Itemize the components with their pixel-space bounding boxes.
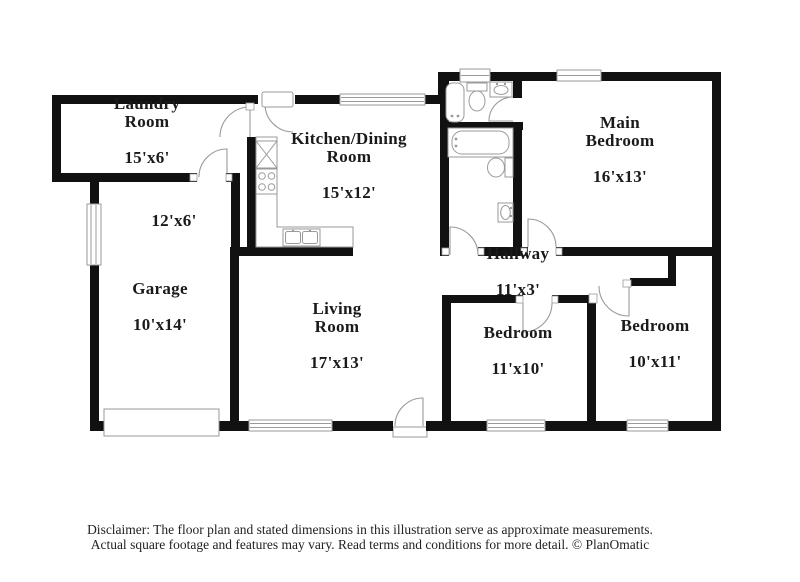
bathtub-icon: [448, 128, 513, 157]
window: [87, 204, 101, 265]
window: [460, 69, 490, 82]
door-arc: [489, 97, 513, 121]
room-label-bedroom-2: Bedroom 10'x11': [621, 299, 690, 389]
wall: [230, 247, 353, 256]
wall: [667, 421, 721, 431]
room-name: Laundry Room: [114, 95, 180, 131]
room-name: Kitchen/Dining Room: [291, 130, 407, 166]
bathroom-2-fixtures: [448, 128, 513, 222]
room-name: Main Bedroom: [586, 114, 655, 150]
room-name: Hallway: [487, 245, 550, 263]
room-label-bedroom-1: Bedroom 11'x10': [484, 306, 553, 396]
room-label-breezeway: 12'x6': [151, 176, 196, 248]
wall: [295, 95, 341, 104]
wall: [587, 295, 596, 431]
shower-icon: [446, 83, 464, 122]
room-name: Living Room: [310, 300, 364, 336]
refrigerator-icon: [256, 141, 277, 168]
kitchen-sink-icon: [283, 229, 320, 246]
room-dims: 11'x10': [484, 360, 553, 378]
wall: [231, 173, 240, 256]
door-arc: [265, 104, 293, 132]
wall: [544, 421, 629, 431]
toilet-icon: [467, 83, 487, 111]
door-arc: [220, 107, 250, 137]
door-jamb: [589, 294, 597, 303]
wall: [426, 421, 488, 431]
window: [627, 420, 668, 431]
window: [557, 70, 601, 81]
toilet-icon: [488, 158, 514, 177]
room-dims: 10'x14': [132, 316, 188, 334]
window: [340, 94, 425, 105]
room-dims: 15'x12': [291, 184, 407, 202]
disclaimer-line-1: Disclaimer: The floor plan and stated di…: [87, 522, 653, 537]
door-jamb: [552, 296, 558, 303]
door-jamb: [623, 280, 631, 287]
room-label-main-bedroom: Main Bedroom 16'x13': [586, 96, 655, 204]
room-name: Bedroom: [621, 317, 690, 335]
room-dims: 17'x13': [310, 354, 364, 372]
wall: [513, 81, 522, 98]
door-jamb: [246, 103, 254, 110]
room-label-laundry: Laundry Room 15'x6': [114, 77, 180, 185]
wall: [668, 250, 676, 282]
bathroom-1-fixtures: [446, 82, 512, 122]
wall: [90, 182, 99, 206]
room-dims: 15'x6': [114, 149, 180, 167]
room-label-living-room: Living Room 17'x13': [310, 282, 364, 390]
wall: [52, 173, 99, 182]
room-dims: 12'x6': [151, 212, 196, 230]
disclaimer: Disclaimer: The floor plan and stated di…: [87, 522, 653, 552]
door-arc: [199, 149, 227, 177]
front-door-arc: [395, 398, 423, 426]
wall: [489, 72, 559, 81]
room-name: Bedroom: [484, 324, 553, 342]
wall: [230, 247, 239, 431]
wall: [90, 264, 99, 431]
door-jamb: [442, 248, 449, 255]
door-arc: [450, 227, 478, 255]
stove-icon: [256, 169, 277, 194]
room-dims: 10'x11': [621, 353, 690, 371]
window: [249, 420, 332, 431]
door-jamb: [556, 248, 562, 255]
bathroom-sink-icon: [498, 203, 513, 222]
door-jamb: [478, 248, 484, 255]
wall: [247, 137, 256, 256]
garage-door: [104, 409, 219, 436]
room-dims: 11'x3': [487, 281, 550, 299]
wall: [442, 295, 451, 431]
window: [487, 420, 545, 431]
wall: [600, 72, 721, 81]
wall: [331, 421, 393, 431]
floor-plan: Laundry Room 15'x6' 12'x6' Kitchen/Dinin…: [0, 0, 800, 582]
disclaimer-line-2: Actual square footage and features may v…: [87, 537, 653, 552]
wall: [52, 95, 61, 182]
back-door-panel: [262, 92, 293, 107]
room-dims: 16'x13': [586, 168, 655, 186]
bathroom-sink-icon: [490, 82, 512, 97]
door-jamb: [226, 174, 232, 181]
room-label-hallway: Hallway 11'x3': [487, 227, 550, 317]
room-name: Garage: [132, 280, 188, 298]
wall: [630, 278, 676, 286]
room-label-kitchen-dining: Kitchen/Dining Room 15'x12': [291, 112, 407, 220]
wall: [712, 72, 721, 431]
front-door-threshold: [393, 427, 427, 437]
room-label-garage: Garage 10'x14': [132, 262, 188, 352]
wall: [556, 247, 712, 256]
